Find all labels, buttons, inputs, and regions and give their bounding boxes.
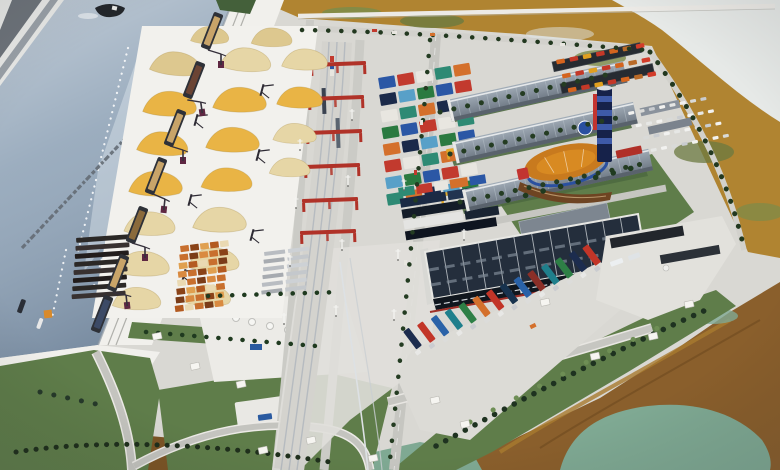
port-model-photo — [0, 0, 780, 470]
photo-vignette — [0, 0, 780, 470]
